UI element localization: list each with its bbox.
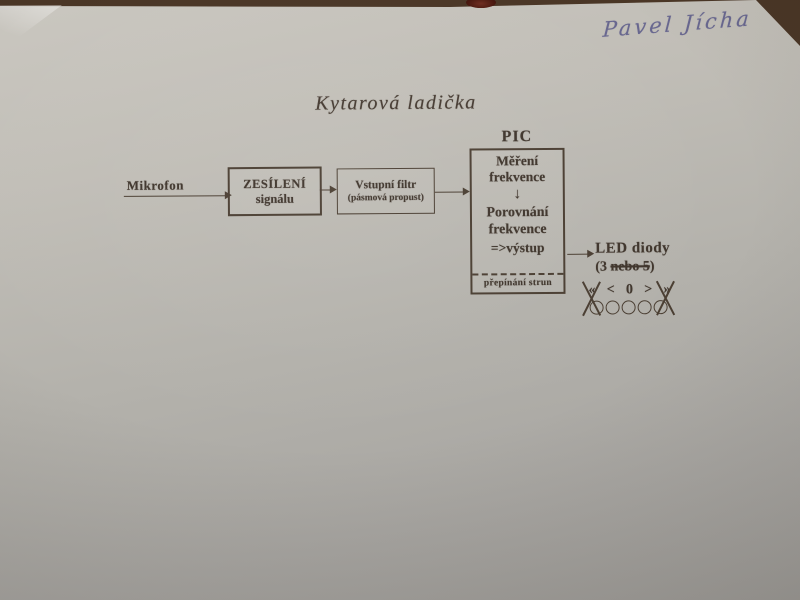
handwriting-note: Pavel Jícha <box>602 6 752 42</box>
amplifier-line2: signálu <box>256 192 294 207</box>
mikrofon-to-amplifier-arrow <box>124 191 232 201</box>
led-circle <box>606 300 620 314</box>
led-count-prefix: (3 <box>595 260 610 275</box>
pic-to-led-arrow <box>567 250 594 259</box>
led-count-suffix: ) <box>650 259 655 274</box>
page-title: Kytarová ladička <box>315 91 477 115</box>
filter-box: Vstupní filtr (pásmová propust) <box>337 168 435 215</box>
pic-step1-line1: Měření <box>496 153 538 169</box>
filter-line2: (pásmová propust) <box>348 192 424 205</box>
pic-output-label: =>výstup <box>491 239 545 257</box>
arrowhead-icon <box>463 188 470 196</box>
amplifier-box: ZESÍLENÍ signálu <box>228 167 322 217</box>
right-symbol: > <box>644 282 652 298</box>
pic-step1-line2: frekvence <box>489 169 545 185</box>
pic-step2-line2: frekvence <box>488 221 546 238</box>
diagram-content: Pavel Jícha Kytarová ladička Mikrofon ZE… <box>0 0 800 600</box>
cross-out-mark-left <box>582 282 600 316</box>
led-circle <box>622 300 636 314</box>
led-circle <box>638 300 652 314</box>
arrow-shaft <box>567 253 589 255</box>
arrowhead-icon <box>587 250 594 258</box>
filter-line1: Vstupní filtr <box>355 178 416 192</box>
amplifier-to-filter-arrow <box>320 185 337 194</box>
pic-label: PIC <box>469 128 564 147</box>
filter-to-pic-arrow <box>435 188 470 197</box>
left-symbol: < <box>607 283 615 299</box>
amplifier-line1: ZESÍLENÍ <box>243 176 306 192</box>
string-switching-label: přepínání strun <box>472 273 563 293</box>
pic-box: Měření frekvence ↓ Porovnání frekvence =… <box>470 148 566 295</box>
arrow-shaft <box>435 191 465 193</box>
pic-step2-line1: Porovnání <box>486 204 548 221</box>
led-count-label: (3 nebo 5) <box>595 259 654 275</box>
led-count-struck: nebo 5 <box>610 259 649 274</box>
cross-out-mark-right <box>656 281 674 315</box>
down-arrow-icon: ↓ <box>514 186 522 203</box>
center-symbol: 0 <box>626 282 633 298</box>
led-diody-label: LED diody <box>595 240 670 258</box>
arrow-shaft <box>124 195 227 197</box>
photo-of-paper: Pavel Jícha Kytarová ladička Mikrofon ZE… <box>0 0 800 600</box>
arrowhead-icon <box>330 185 337 193</box>
